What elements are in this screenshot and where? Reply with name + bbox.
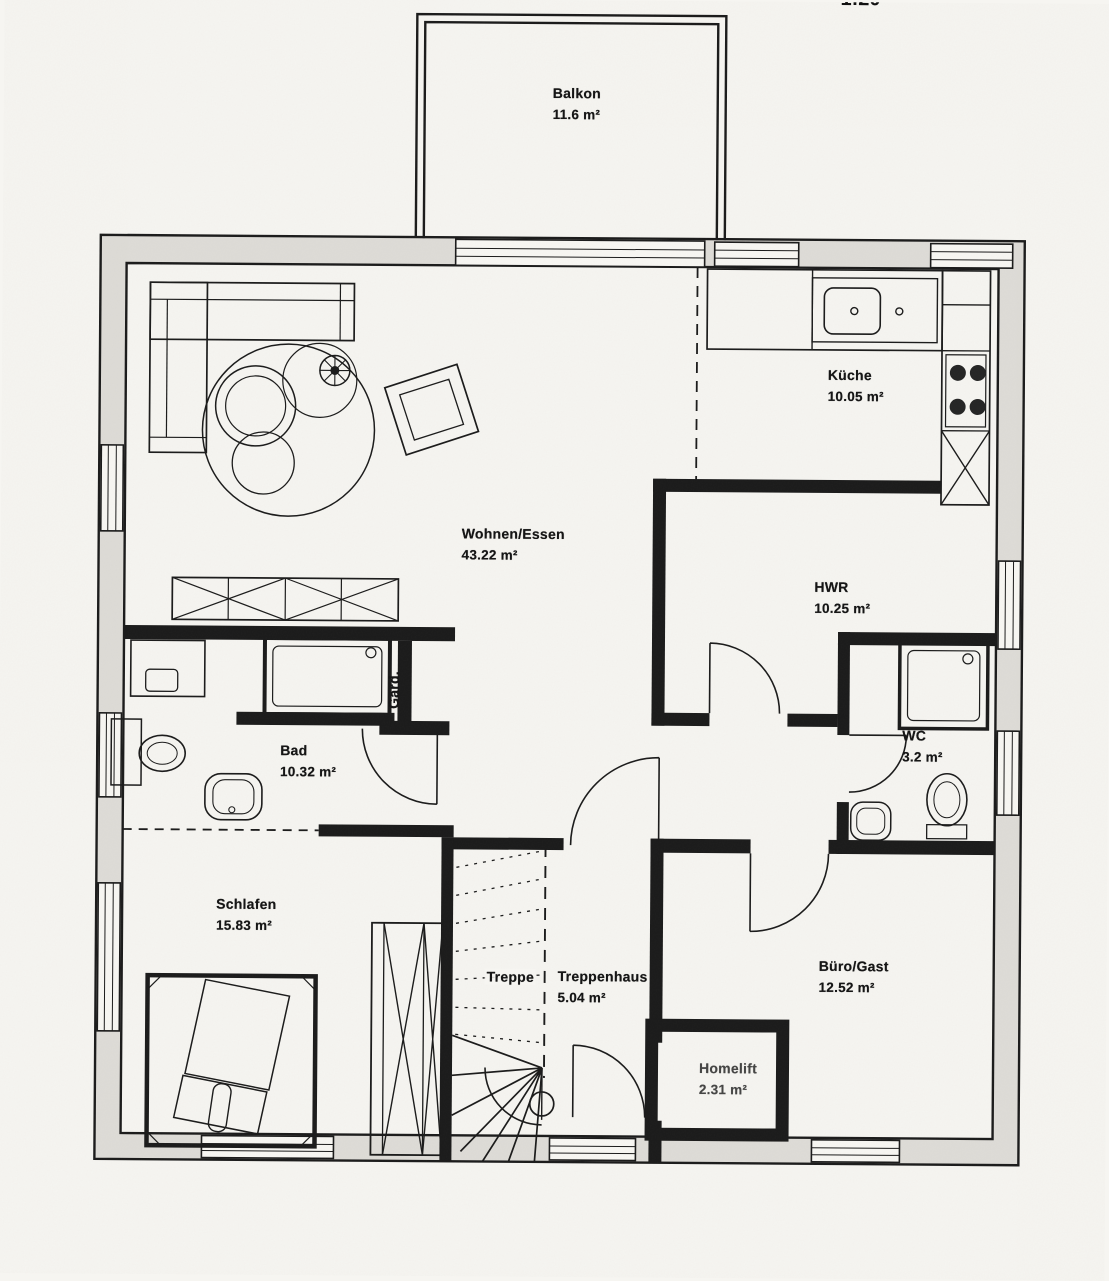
room-label-balkon: Balkon 11.6 m²: [553, 86, 601, 122]
paper-grain: [0, 0, 1109, 1281]
room-label-homelift: Homelift 2.31 m²: [699, 1061, 757, 1097]
floor-plan-page: Balkon 11.6 m² Küche 10.05 m² Wohnen/Ess…: [0, 0, 1109, 1281]
scale-note: 1:20: [840, 2, 920, 12]
room-label-buero-gast: Büro/Gast 12.52 m²: [819, 959, 889, 995]
room-label-treppe: Treppe: [485, 969, 537, 985]
room-label-garderobe: Gard.: [387, 671, 401, 709]
room-label-wc: WC 3.2 m²: [902, 728, 943, 764]
room-label-hwr: HWR 10.25 m²: [814, 580, 870, 616]
room-label-kueche: Küche 10.05 m²: [828, 368, 884, 404]
room-label-schlafen: Schlafen 15.83 m²: [216, 897, 277, 933]
room-label-treppenhaus: Treppenhaus 5.04 m²: [557, 969, 647, 1005]
floor-plan-drawing: [0, 0, 1109, 1281]
room-label-wohnen-essen: Wohnen/Essen 43.22 m²: [462, 526, 565, 562]
room-label-bad: Bad 10.32 m²: [280, 743, 336, 779]
